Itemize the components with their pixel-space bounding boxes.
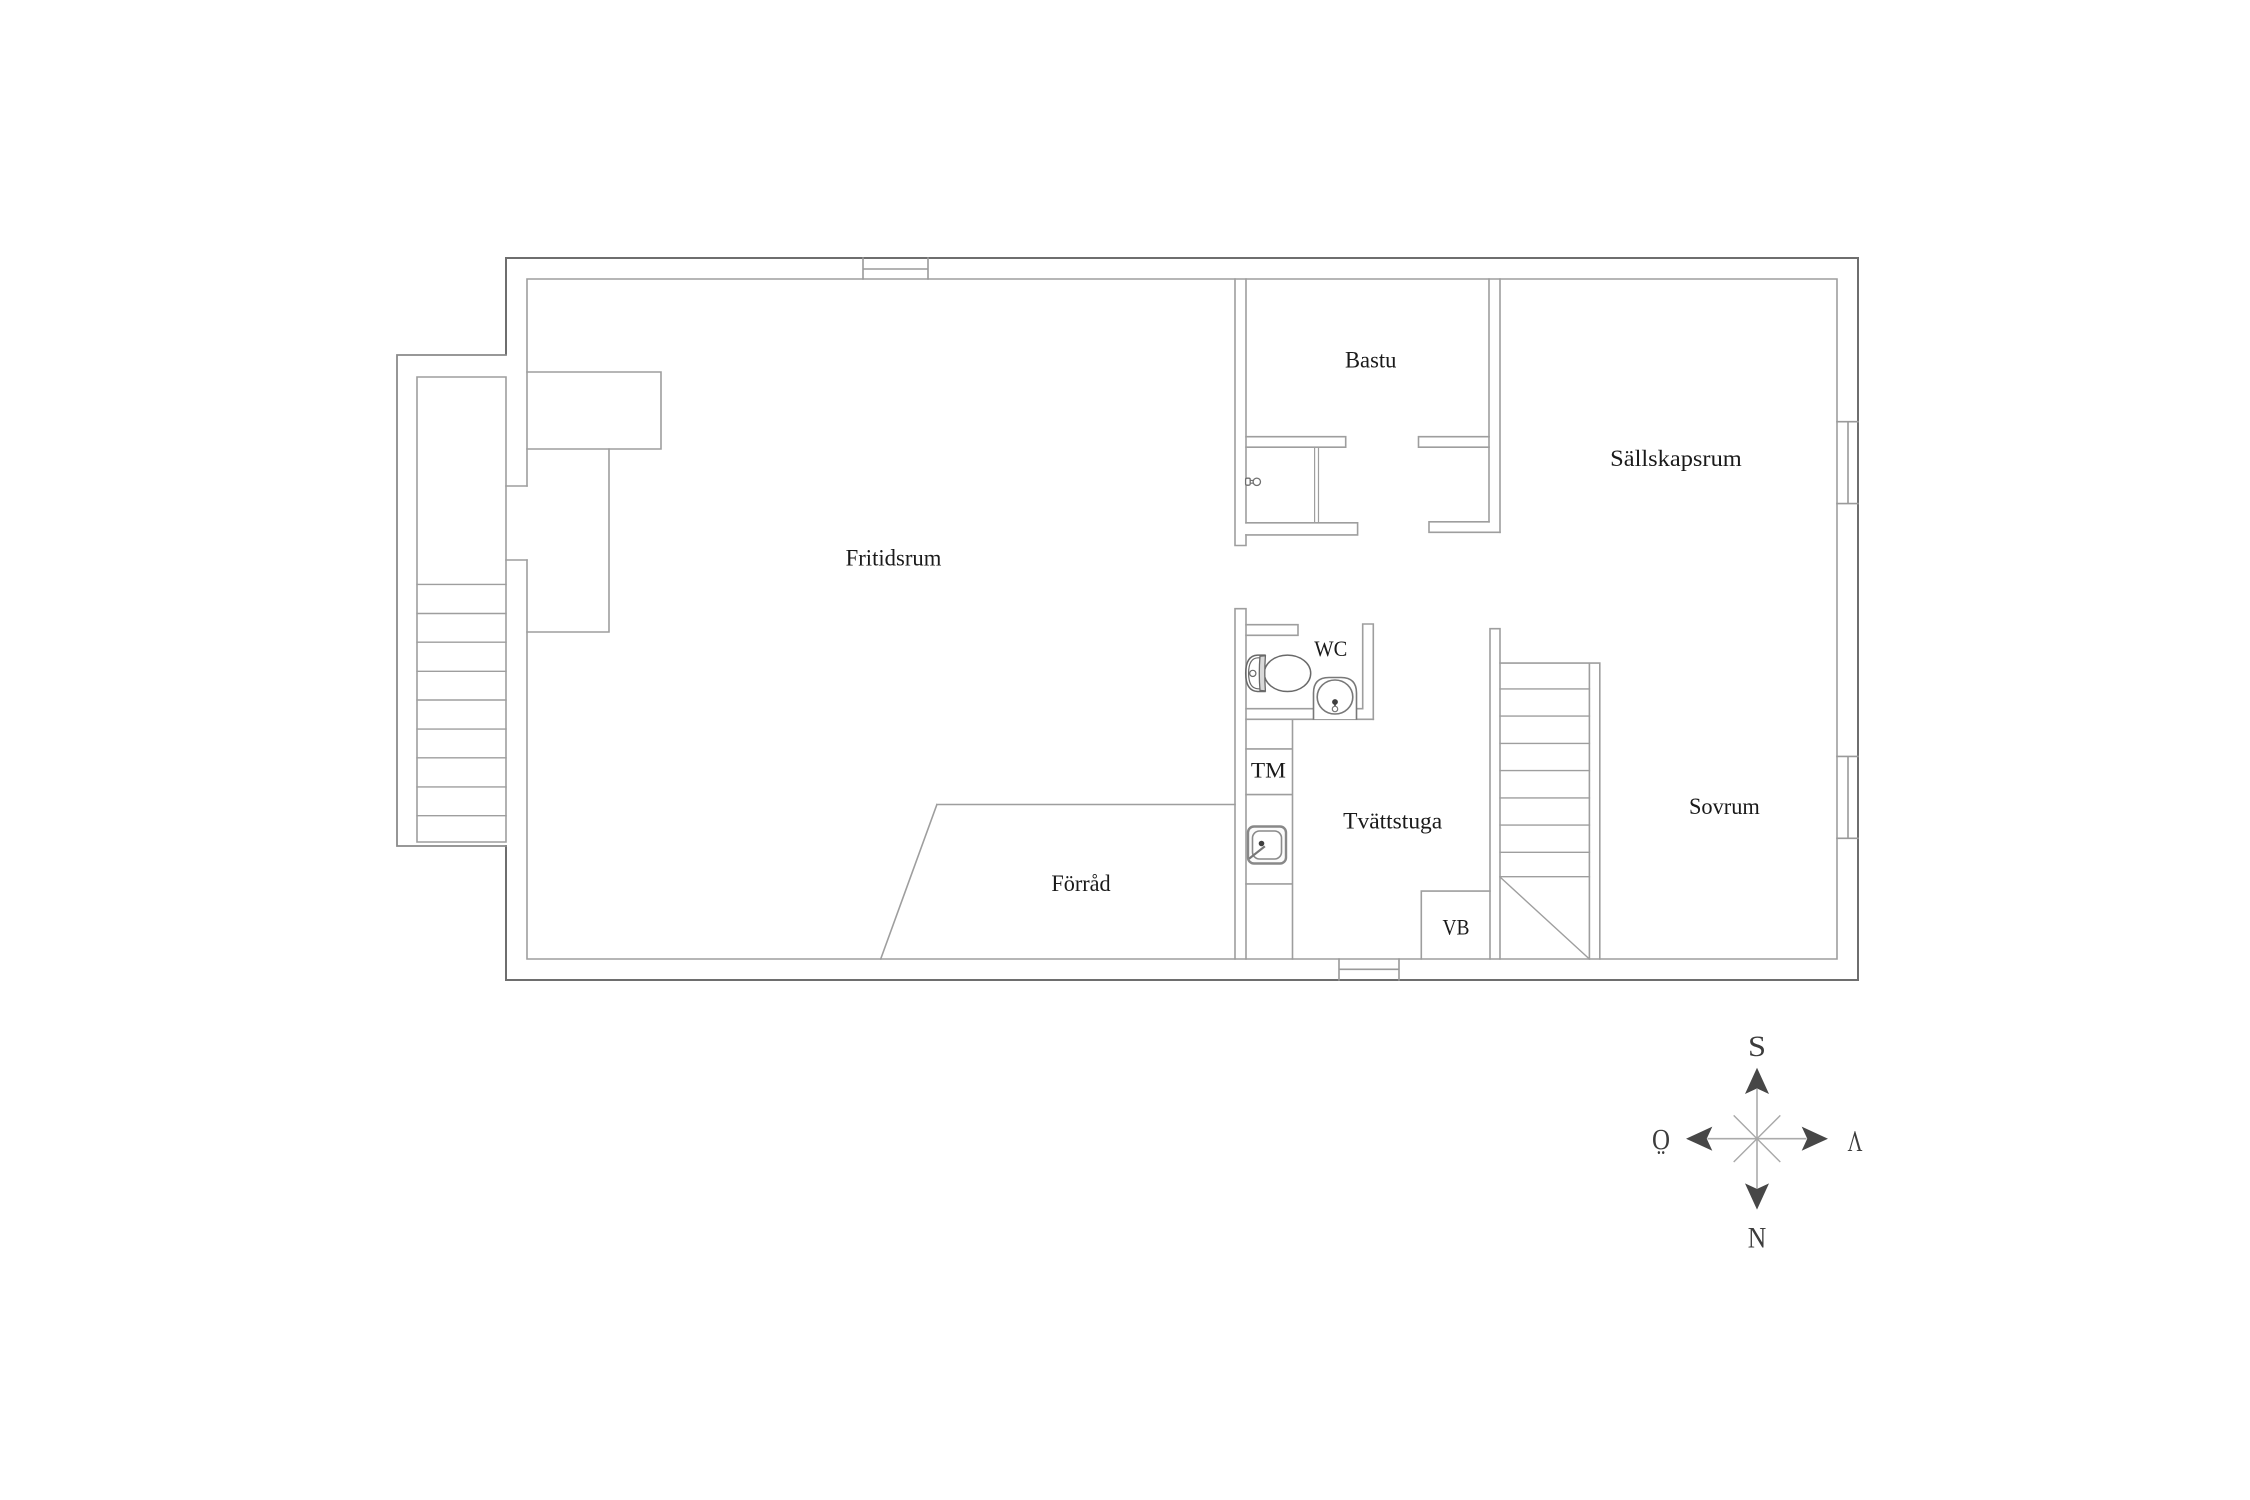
svg-text:Sovrum: Sovrum [1689, 794, 1760, 819]
svg-text:VB: VB [1443, 915, 1470, 940]
svg-text:Förråd: Förråd [1051, 871, 1111, 896]
svg-text:S: S [1748, 1030, 1766, 1063]
svg-text:Tvättstuga: Tvättstuga [1343, 809, 1442, 834]
svg-text:Fritidsrum: Fritidsrum [846, 546, 942, 571]
svg-text:V: V [1847, 1125, 1862, 1158]
svg-text:Sällskapsrum: Sällskapsrum [1610, 446, 1742, 471]
svg-text:Ö: Ö [1652, 1123, 1670, 1156]
svg-text:WC: WC [1314, 636, 1347, 661]
svg-text:Bastu: Bastu [1345, 348, 1397, 373]
svg-text:TM: TM [1251, 757, 1286, 782]
svg-text:N: N [1748, 1222, 1767, 1255]
